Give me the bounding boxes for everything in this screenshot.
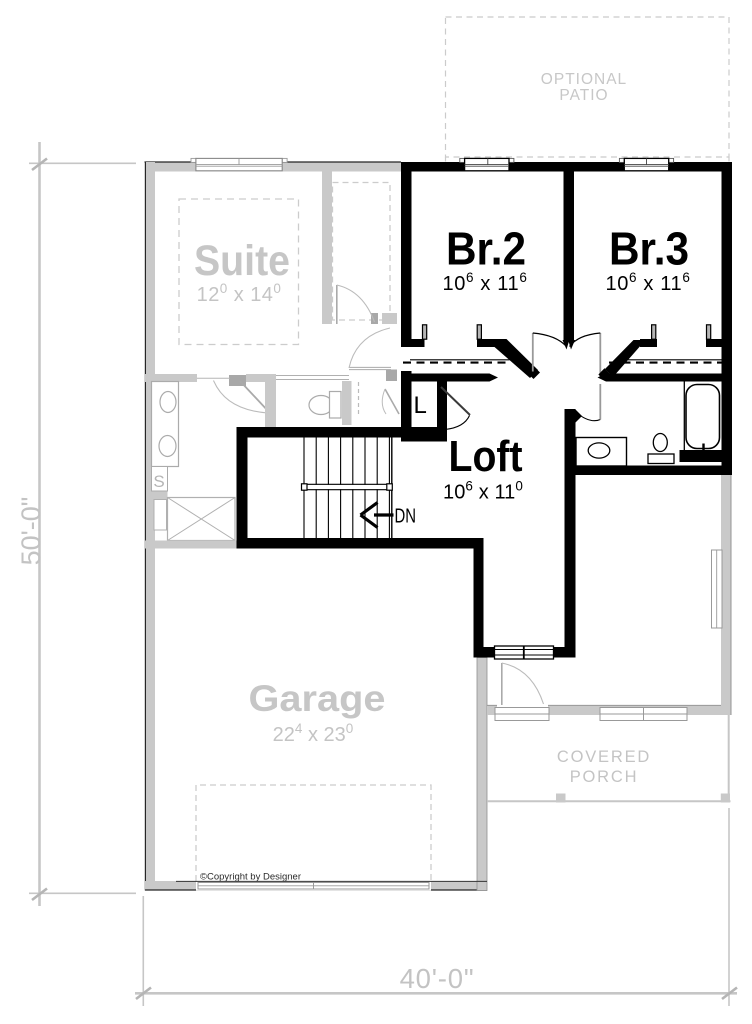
svg-text:120 x 140: 120 x 140 (197, 281, 282, 306)
svg-text:106 x 110: 106 x 110 (443, 479, 523, 504)
svg-text:DN: DN (395, 504, 417, 527)
svg-text:50'-0": 50'-0" (16, 497, 46, 566)
svg-text:S: S (153, 472, 164, 491)
svg-text:PATIO: PATIO (559, 87, 608, 104)
svg-text:106 x 116: 106 x 116 (605, 270, 690, 295)
svg-text:Loft: Loft (449, 432, 523, 481)
svg-text:©Copyright by Designer: ©Copyright by Designer (200, 872, 301, 883)
svg-text:Garage: Garage (249, 678, 386, 719)
svg-text:40'-0": 40'-0" (400, 963, 475, 994)
svg-text:106 x 116: 106 x 116 (442, 270, 527, 295)
svg-text:Br.2: Br.2 (446, 223, 526, 275)
svg-text:PORCH: PORCH (570, 768, 639, 786)
svg-text:Suite: Suite (194, 237, 290, 285)
svg-text:224 x 230: 224 x 230 (273, 721, 354, 746)
svg-text:L: L (414, 392, 427, 419)
svg-text:OPTIONAL: OPTIONAL (541, 71, 627, 88)
svg-text:Br.3: Br.3 (609, 223, 689, 275)
svg-text:COVERED: COVERED (557, 748, 651, 766)
